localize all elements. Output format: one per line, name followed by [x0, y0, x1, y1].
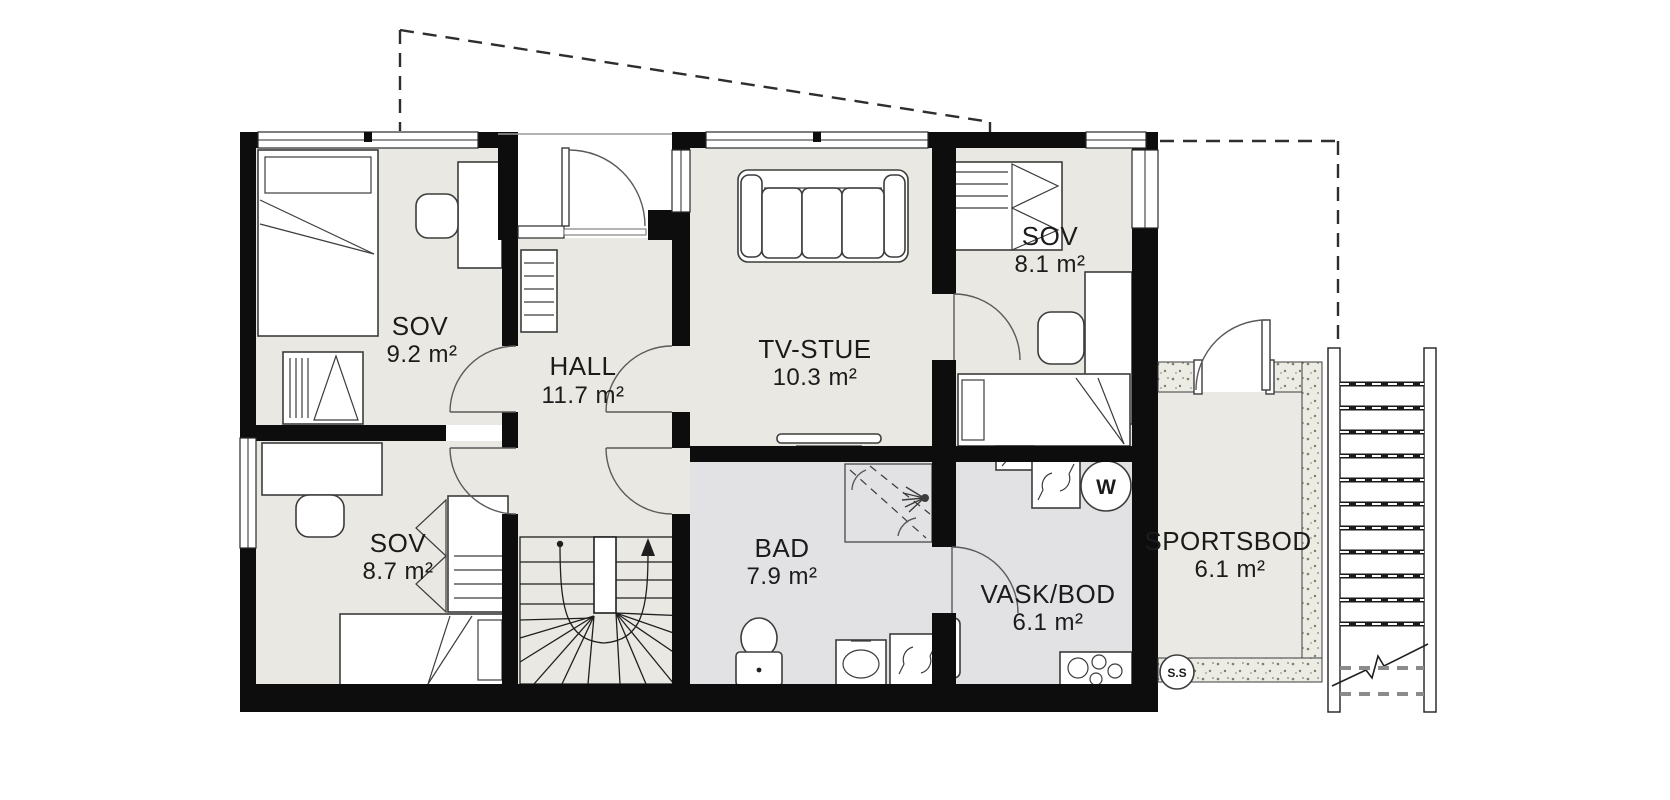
toilet-icon: [736, 618, 782, 686]
room-area: 7.9 m²: [746, 563, 817, 590]
window: [1086, 132, 1146, 148]
room-name: TV-STUE: [758, 334, 871, 364]
roof-outline: [400, 30, 990, 122]
sportsbod-door: [1262, 320, 1270, 390]
doorway: [672, 448, 690, 514]
floor-plan: W: [0, 0, 1670, 800]
stair-start-dot: [557, 541, 563, 547]
water-heater-icon: W: [1081, 461, 1131, 511]
wardrobe: [283, 352, 363, 424]
window: [1132, 150, 1158, 228]
floor-drain-label: S.S: [1167, 666, 1186, 680]
window: [240, 438, 256, 548]
bed: [958, 374, 1130, 446]
stair-break-line: [1332, 644, 1428, 686]
room-area: 6.1 m²: [1012, 609, 1083, 636]
doorway: [932, 294, 956, 360]
room-area: 6.1 m²: [1194, 556, 1265, 583]
room-name: BAD: [755, 533, 810, 563]
room-name: VASK/BOD: [980, 579, 1115, 609]
room-area: 11.7 m²: [541, 382, 624, 409]
window: [258, 132, 478, 148]
sofa: [738, 170, 908, 262]
entry-wall: [518, 226, 564, 238]
sportsbod-wall: [1302, 362, 1322, 682]
sportsbod-wall: [1158, 362, 1194, 392]
room-name: HALL: [549, 351, 616, 381]
doorway: [502, 346, 518, 412]
room-floor-sportsbod: [1158, 392, 1302, 658]
entry-door-swing: [569, 150, 645, 226]
sportsbod: S.S: [1158, 320, 1322, 689]
room-area: 8.7 m²: [362, 558, 433, 585]
entry: [498, 134, 672, 238]
laundry-sink-icon: [1060, 652, 1132, 686]
sportsbod-door-swing: [1196, 320, 1266, 390]
dryer-icon: [1032, 456, 1080, 508]
stair-treads: [1340, 384, 1424, 624]
room-area: 9.2 m²: [386, 341, 457, 368]
exterior-stair: [1328, 348, 1436, 712]
bed: [340, 614, 508, 686]
doorway: [672, 346, 690, 412]
floor-plan-drawing: W: [0, 0, 1670, 800]
bed: [258, 150, 378, 336]
window: [706, 132, 928, 148]
room-name: SOV: [1022, 221, 1079, 251]
room-area: 8.1 m²: [1014, 251, 1085, 278]
room-name: SOV: [392, 311, 449, 341]
floor-drain-icon: S.S: [1160, 655, 1194, 689]
room-name: SPORTSBOD: [1144, 526, 1311, 556]
entry-door: [562, 148, 569, 226]
radiator: [521, 250, 557, 332]
window: [672, 150, 690, 212]
water-heater-label: W: [1096, 476, 1116, 499]
sink-icon: [836, 640, 886, 686]
room-area: 10.3 m²: [773, 364, 858, 391]
entry-threshold: [564, 229, 646, 235]
room-name: SOV: [370, 528, 427, 558]
